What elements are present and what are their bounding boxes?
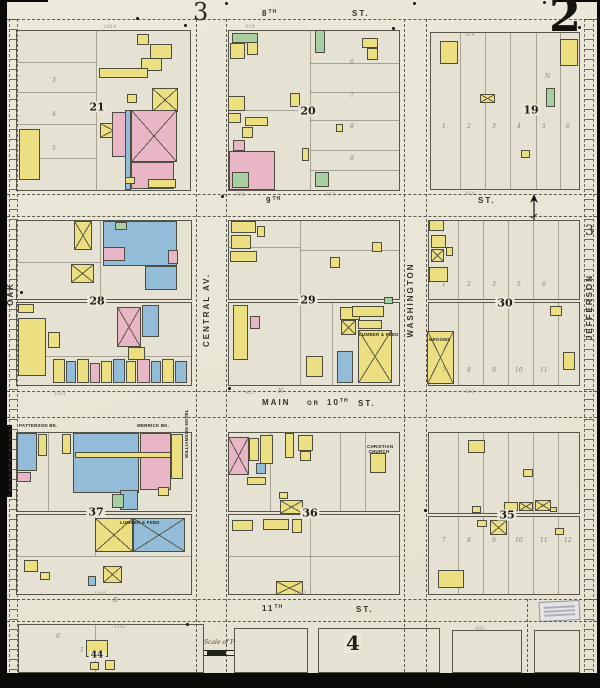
building xyxy=(523,469,533,477)
building xyxy=(563,352,575,370)
street-label: ST. xyxy=(356,606,374,614)
lot-line xyxy=(48,432,49,512)
building xyxy=(131,110,177,162)
building xyxy=(171,434,183,479)
building xyxy=(336,124,343,132)
street-label-vertical: OAK xyxy=(7,274,15,314)
lot-number: 3 xyxy=(492,124,496,130)
building xyxy=(279,492,288,499)
building-label: MERRICK BK. xyxy=(137,423,169,428)
building xyxy=(302,148,309,161)
lot-number: 0 xyxy=(56,634,60,640)
building xyxy=(480,94,495,103)
lot-line xyxy=(510,32,511,190)
building xyxy=(519,502,533,511)
building xyxy=(490,520,507,535)
building xyxy=(468,440,485,453)
street-label: 10TH xyxy=(327,399,349,407)
lot-number: 4 xyxy=(52,112,56,118)
building xyxy=(367,48,378,60)
sanborn-map-sheet: 2 3 3 APRIL 1905 HARPER KAN. Scale of Fe… xyxy=(0,0,600,688)
building xyxy=(105,660,115,670)
block-number: 28 xyxy=(87,296,106,307)
building xyxy=(358,330,392,383)
building xyxy=(73,433,139,493)
lot-line xyxy=(340,432,341,512)
dimension-number: 814 xyxy=(465,33,475,38)
building xyxy=(315,30,325,53)
building xyxy=(19,129,40,180)
street-dash-line xyxy=(7,417,597,418)
building xyxy=(115,222,127,230)
building xyxy=(228,96,245,111)
building xyxy=(472,506,481,513)
street-dash-line xyxy=(7,599,597,600)
dimension-number: 1005 xyxy=(294,591,307,596)
building xyxy=(158,487,169,496)
building xyxy=(150,44,172,59)
dimension-number: 907 xyxy=(325,193,335,198)
block-number: 36 xyxy=(300,508,319,519)
building xyxy=(550,306,562,316)
building xyxy=(53,359,65,383)
building xyxy=(233,140,245,151)
building xyxy=(148,179,176,188)
building xyxy=(477,520,487,527)
lot-number: 2 xyxy=(467,124,471,130)
street-dash-line xyxy=(7,19,597,20)
lot-line xyxy=(508,220,509,300)
lot-line xyxy=(16,62,96,63)
building xyxy=(440,41,458,64)
building xyxy=(103,247,125,261)
survey-dot xyxy=(578,26,581,29)
building xyxy=(372,242,382,252)
building xyxy=(300,451,311,461)
building xyxy=(175,361,187,383)
building xyxy=(560,39,578,66)
street-dash-line xyxy=(7,391,597,392)
north-arrow-icon xyxy=(527,194,541,222)
dimension-number: 921 xyxy=(245,391,255,396)
city-block xyxy=(234,628,308,673)
building xyxy=(162,359,174,383)
building xyxy=(242,127,253,138)
dimension-number: 915 xyxy=(235,193,245,198)
building xyxy=(75,452,171,458)
lot-number: 8 xyxy=(467,538,471,544)
city-block xyxy=(228,514,400,595)
survey-dot xyxy=(184,24,187,27)
lot-number: 8 xyxy=(467,368,471,374)
edge-shadow xyxy=(0,0,48,2)
building-label: BROOMS xyxy=(429,337,450,342)
lot-line xyxy=(300,302,301,386)
building xyxy=(228,437,249,475)
street-label-vertical: JEFFERSON xyxy=(586,262,594,352)
building xyxy=(112,494,124,508)
block-number: 37 xyxy=(86,507,105,518)
street-label: ST. xyxy=(478,197,496,205)
building xyxy=(446,247,453,256)
building xyxy=(90,363,100,383)
building xyxy=(127,94,137,103)
building-label: WILLIAMSON HOTEL xyxy=(184,409,189,458)
dimension-number: 1021 xyxy=(54,392,67,397)
lot-number: 2 xyxy=(467,282,471,288)
library-stamp xyxy=(539,600,581,622)
building xyxy=(256,463,266,474)
survey-dot xyxy=(136,17,139,20)
building xyxy=(168,250,178,264)
building xyxy=(231,221,256,233)
lot-number: 1 xyxy=(442,282,446,288)
building xyxy=(62,434,71,454)
building xyxy=(142,305,159,337)
building xyxy=(233,305,248,360)
building xyxy=(337,351,353,383)
lot-line xyxy=(300,250,400,251)
building xyxy=(112,112,126,157)
building xyxy=(140,433,171,490)
building xyxy=(117,307,141,347)
lot-number: 3 xyxy=(52,78,56,84)
lot-line xyxy=(16,556,192,557)
lot-number: 3 xyxy=(492,282,496,288)
lot-number: 10 xyxy=(515,368,523,374)
building xyxy=(101,361,112,383)
building xyxy=(126,361,136,383)
building xyxy=(74,221,92,250)
lot-number: 6 xyxy=(566,124,570,130)
lot-line xyxy=(458,432,459,514)
map-canvas: 2 3 3 APRIL 1905 HARPER KAN. Scale of Fe… xyxy=(0,0,600,688)
lot-line xyxy=(332,302,333,386)
lot-number: 5 xyxy=(52,146,56,152)
building xyxy=(546,88,555,107)
building xyxy=(429,220,444,231)
dimension-number: 821 xyxy=(465,390,475,395)
building xyxy=(40,572,50,580)
building xyxy=(384,297,393,304)
building xyxy=(113,359,125,383)
building xyxy=(90,662,99,670)
block-number: 29 xyxy=(298,295,317,306)
lot-line xyxy=(100,220,101,300)
building xyxy=(263,519,289,530)
street-label: 11TH xyxy=(262,605,283,613)
lot-line xyxy=(300,220,301,300)
street-label: MAIN xyxy=(262,399,290,407)
building xyxy=(18,318,46,376)
building xyxy=(231,235,251,249)
building xyxy=(330,257,340,268)
building xyxy=(24,560,38,572)
lot-number: 9 xyxy=(350,156,354,162)
street-dash-line xyxy=(7,194,597,195)
street-label: ST. xyxy=(352,10,370,18)
building xyxy=(429,267,448,282)
lot-line xyxy=(16,124,96,125)
building xyxy=(18,304,34,313)
lot-number: 6 xyxy=(350,60,354,66)
city-block xyxy=(318,628,440,673)
building xyxy=(99,68,148,78)
building xyxy=(250,316,260,329)
lot-number: 6 xyxy=(542,282,546,288)
lot-number: 7 xyxy=(442,368,446,374)
building xyxy=(103,566,122,583)
building xyxy=(66,361,76,383)
building xyxy=(306,356,323,377)
lot-line xyxy=(558,432,559,514)
building xyxy=(341,320,356,335)
building xyxy=(88,576,96,586)
building xyxy=(358,320,382,329)
block-number: 21 xyxy=(87,102,106,113)
building xyxy=(352,306,384,317)
building xyxy=(257,226,265,237)
lot-number: R xyxy=(113,598,118,604)
block-number: 20 xyxy=(298,106,317,117)
lot-number: N xyxy=(278,389,283,395)
survey-dot xyxy=(392,27,395,30)
building xyxy=(292,519,302,533)
street-dash-line xyxy=(527,599,528,672)
building xyxy=(285,433,294,458)
building xyxy=(17,472,31,482)
lot-line xyxy=(310,170,400,171)
building xyxy=(230,251,257,262)
street-label: 8TH xyxy=(262,10,277,18)
city-block xyxy=(534,630,580,673)
lot-number: 11 xyxy=(540,368,548,374)
survey-dot xyxy=(186,623,189,626)
block-number: 30 xyxy=(495,298,514,309)
lot-line xyxy=(533,302,534,386)
building xyxy=(152,88,178,112)
building xyxy=(145,266,177,290)
block-number: 44 xyxy=(89,652,106,661)
lot-number: 1 xyxy=(442,124,446,130)
lot-number: 8 xyxy=(350,124,354,130)
lot-number: 7 xyxy=(442,538,446,544)
building xyxy=(232,520,253,531)
street-dash-line xyxy=(7,216,597,217)
street-label: OR xyxy=(307,401,320,407)
building xyxy=(370,453,386,473)
lot-number: N xyxy=(545,74,550,80)
building xyxy=(230,43,245,59)
lot-line xyxy=(483,516,484,595)
lot-line xyxy=(533,516,534,595)
lot-line xyxy=(458,302,459,386)
building-label: LUMBER & FEED xyxy=(359,332,399,337)
dimension-number: 1014 xyxy=(104,25,117,30)
building xyxy=(232,172,249,188)
lot-line xyxy=(310,92,400,93)
survey-dot xyxy=(20,291,23,294)
street-dash-line xyxy=(7,621,597,622)
lot-line xyxy=(228,556,400,557)
lot-line xyxy=(483,220,484,300)
building xyxy=(431,249,444,262)
lot-line xyxy=(508,516,509,595)
lot-number: 12 xyxy=(564,538,572,544)
dimension-number: 914 xyxy=(245,25,255,30)
building xyxy=(362,38,378,48)
building xyxy=(38,434,47,456)
building xyxy=(260,435,273,464)
survey-dot xyxy=(413,2,416,5)
building-label: LUMBER & FEED xyxy=(120,520,160,525)
dimension-number: 1102 xyxy=(114,625,127,630)
lot-number: 9 xyxy=(492,538,496,544)
survey-dot xyxy=(228,387,231,390)
building xyxy=(247,477,266,485)
street-dash-line xyxy=(404,19,405,672)
lot-number: 5 xyxy=(517,282,521,288)
dimension-number: 819 xyxy=(465,192,475,197)
dimension-number: 902 xyxy=(475,627,485,632)
lot-line xyxy=(533,432,534,514)
lot-number: 11 xyxy=(540,538,548,544)
street-tick-ladder xyxy=(9,19,18,672)
lot-line xyxy=(310,63,400,64)
building xyxy=(431,235,446,248)
lot-line xyxy=(310,150,400,151)
street-label-vertical: CENTRAL AV. xyxy=(203,240,211,380)
building xyxy=(71,264,94,283)
building xyxy=(137,34,149,45)
block-number: 35 xyxy=(497,510,516,521)
building xyxy=(137,359,150,383)
lot-line xyxy=(365,432,366,512)
building xyxy=(298,435,313,451)
lot-line xyxy=(310,120,400,121)
lot-line xyxy=(310,514,311,595)
building xyxy=(151,361,161,383)
dimension-number: 1105 xyxy=(94,592,107,597)
building-label: PATTERSON BK. xyxy=(19,423,58,428)
building xyxy=(228,113,241,123)
building xyxy=(48,332,60,348)
lot-line xyxy=(483,302,484,386)
building xyxy=(521,150,530,158)
building xyxy=(125,177,135,184)
building xyxy=(438,570,464,588)
lot-number: 7 xyxy=(350,93,354,99)
block-number: 19 xyxy=(521,105,540,116)
building xyxy=(249,438,259,461)
building xyxy=(315,172,329,187)
building xyxy=(17,433,37,471)
city-block xyxy=(452,630,522,673)
street-label: ST. xyxy=(358,400,376,408)
lot-line xyxy=(16,92,96,93)
building-label: CHRISTIAN CHURCH xyxy=(367,444,391,454)
block-number: 4 xyxy=(344,633,362,653)
lot-line xyxy=(485,32,486,190)
survey-dot xyxy=(225,2,228,5)
building xyxy=(245,117,268,126)
lot-line xyxy=(558,220,559,300)
survey-dot xyxy=(221,195,224,198)
street-dash-line xyxy=(226,19,227,672)
lot-number: 5 xyxy=(542,124,546,130)
lot-line xyxy=(16,262,100,263)
survey-dot xyxy=(543,1,546,4)
building xyxy=(535,500,551,511)
lot-line xyxy=(458,220,459,300)
lot-number: 4 xyxy=(517,124,521,130)
lot-line xyxy=(533,220,534,300)
street-dash-line xyxy=(196,19,197,672)
lot-line xyxy=(508,302,509,386)
survey-dot xyxy=(424,509,427,512)
street-label: 9TH xyxy=(266,197,281,205)
building xyxy=(550,507,557,512)
building xyxy=(77,359,89,383)
building xyxy=(247,42,258,55)
lot-number: 9 xyxy=(492,368,496,374)
street-label-vertical: WASHINGTON xyxy=(407,250,415,350)
lot-number: 10 xyxy=(515,538,523,544)
lot-line xyxy=(460,32,461,190)
building xyxy=(555,528,564,535)
lot-number: 1 xyxy=(80,648,84,654)
